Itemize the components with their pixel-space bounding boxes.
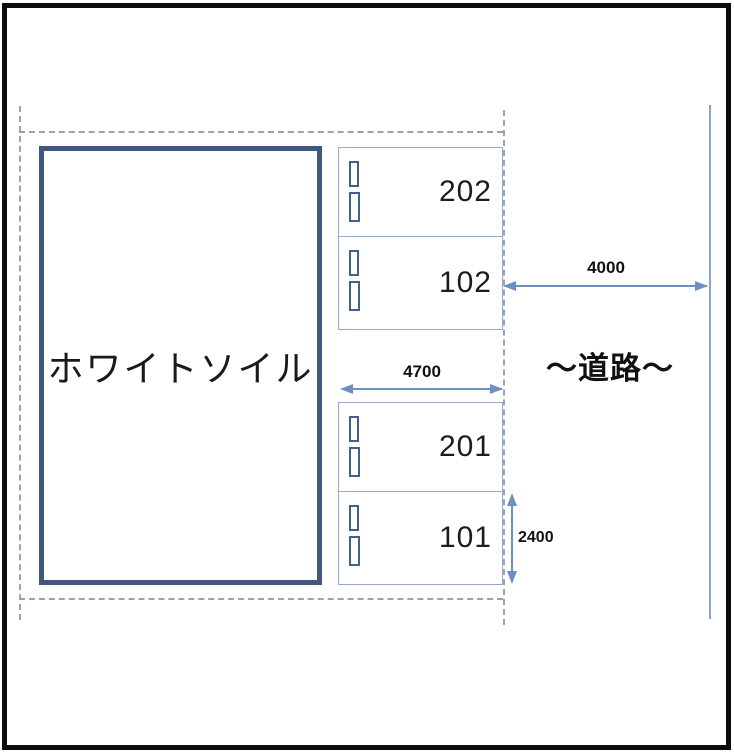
- dimension-line-4000: [505, 285, 707, 287]
- road-label: ～道路～: [529, 343, 691, 388]
- property-boundary-top-line: [19, 131, 503, 133]
- unit-number: 102: [439, 266, 492, 300]
- entrance-marker-icon: [349, 192, 360, 222]
- arrowhead-right-icon: [490, 384, 503, 394]
- entrance-marker-icon: [349, 416, 359, 442]
- entrance-marker-icon: [349, 505, 359, 531]
- entrance-marker-icon: [349, 250, 359, 276]
- entrance-marker-icon: [349, 161, 359, 187]
- building-outline: ホワイトソイル: [39, 146, 322, 585]
- building-name: ホワイトソイル: [47, 340, 313, 392]
- arrowhead-left-icon: [340, 384, 353, 394]
- arrowhead-down-icon: [507, 571, 517, 584]
- property-boundary-right-line: [503, 110, 505, 625]
- dimension-label-4700: 4700: [342, 362, 502, 382]
- property-boundary-left-line: [19, 106, 21, 620]
- parking-unit-202: 202: [338, 147, 503, 237]
- unit-number: 201: [439, 430, 492, 464]
- entrance-marker-icon: [349, 447, 360, 477]
- entrance-marker-icon: [349, 536, 360, 566]
- arrowhead-up-icon: [507, 493, 517, 506]
- dimension-line-2400: [511, 496, 513, 582]
- arrowhead-right-icon: [695, 281, 708, 291]
- site-plan-diagram: ホワイトソイル 202 102 201 101 4000 4700 2400 ～…: [0, 0, 734, 754]
- parking-unit-101: 101: [338, 491, 503, 585]
- arrowhead-left-icon: [503, 281, 516, 291]
- road-edge-line: [709, 105, 711, 619]
- entrance-marker-icon: [349, 281, 360, 311]
- parking-unit-102: 102: [338, 236, 503, 330]
- property-boundary-bottom-line: [19, 598, 503, 600]
- parking-unit-201: 201: [338, 402, 503, 492]
- dimension-label-2400: 2400: [518, 529, 568, 547]
- dimension-label-4000: 4000: [505, 258, 707, 278]
- unit-number: 101: [439, 521, 492, 555]
- dimension-line-4700: [342, 388, 502, 390]
- unit-number: 202: [439, 175, 492, 209]
